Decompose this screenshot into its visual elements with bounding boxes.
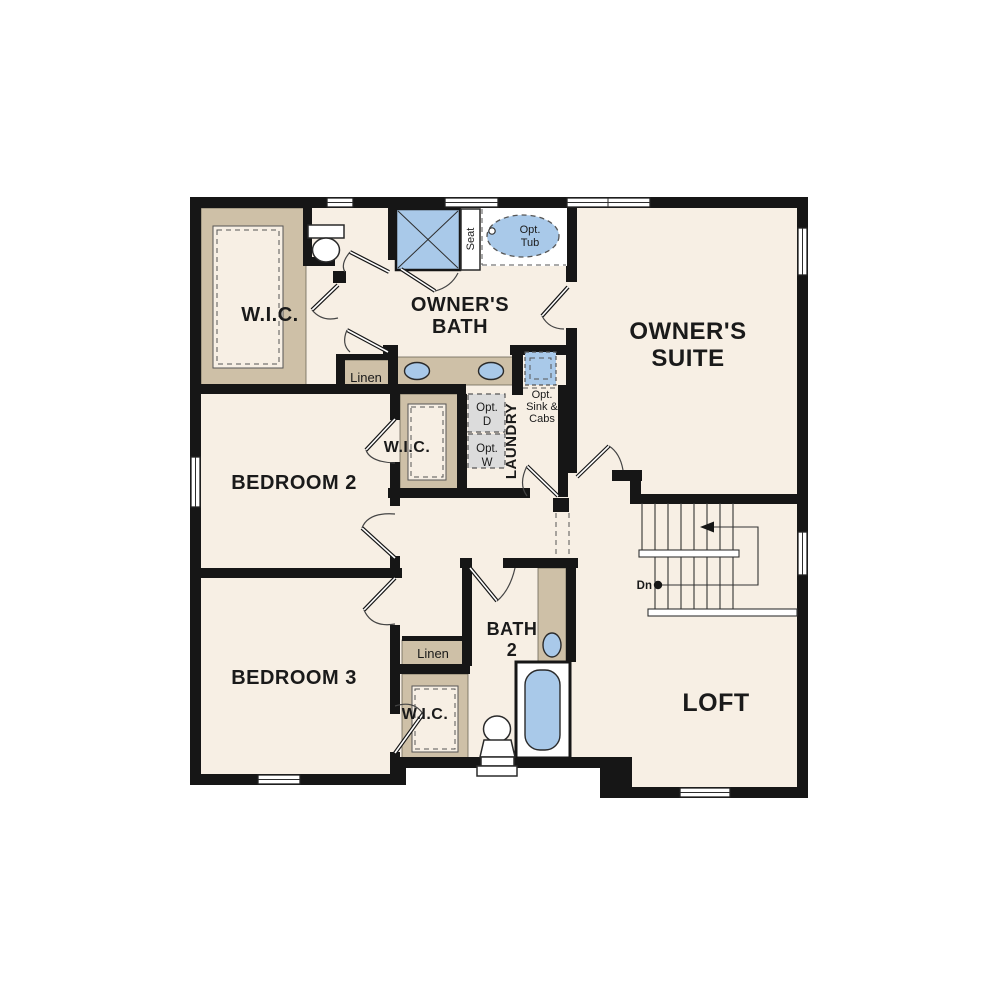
wall xyxy=(333,271,346,283)
window xyxy=(798,228,807,275)
wall xyxy=(460,558,472,568)
wall xyxy=(390,462,400,506)
window xyxy=(258,775,300,784)
label-linen2: Linen xyxy=(417,646,449,661)
room-label-owners-suite: SUITE xyxy=(651,345,724,372)
floor-plan-drawing: W.I.C. OWNER'S BATH OWNER'S SUITE BEDROO… xyxy=(0,0,1000,1000)
label-seat: Seat xyxy=(465,228,477,251)
wall xyxy=(336,354,345,394)
wall xyxy=(462,558,472,666)
wall xyxy=(612,470,642,481)
sink xyxy=(479,363,504,380)
label-linen1: Linen xyxy=(350,370,382,385)
room-label-wic2: W.I.C. xyxy=(384,439,431,456)
optional-sink-cabs xyxy=(523,352,558,388)
wall xyxy=(566,328,577,473)
wall xyxy=(402,636,466,641)
wall xyxy=(388,345,398,394)
wall xyxy=(190,197,808,208)
label-opt-dryer: D xyxy=(483,416,491,428)
window xyxy=(445,198,498,207)
wall xyxy=(630,494,808,504)
wall xyxy=(388,488,530,498)
label-opt-washer: W xyxy=(482,457,493,469)
wall xyxy=(553,498,569,512)
window-double xyxy=(567,198,650,207)
wall xyxy=(190,568,402,578)
label-opt-sink: Cabs xyxy=(529,413,555,425)
room-label-wic1: W.I.C. xyxy=(241,304,298,326)
bathtub xyxy=(516,662,570,758)
wall xyxy=(390,674,400,714)
wall xyxy=(390,625,400,665)
stair-bottom-edge xyxy=(648,609,797,616)
stair-direction-dot xyxy=(654,581,662,589)
room-label-bath2: BATH xyxy=(487,619,538,639)
floor-plan: W.I.C. OWNER'S BATH OWNER'S SUITE BEDROO… xyxy=(0,0,1000,1000)
room-label-bedroom3: BEDROOM 3 xyxy=(231,667,357,689)
wall xyxy=(566,558,576,662)
room-label-owners-suite: OWNER'S xyxy=(629,318,746,345)
label-opt-sink: Opt. xyxy=(532,389,553,401)
wall xyxy=(390,752,400,777)
room-label-laundry: LAUNDRY xyxy=(503,403,520,479)
window xyxy=(191,457,200,507)
room-label-wic3: W.I.C. xyxy=(402,706,449,723)
wall xyxy=(457,394,467,488)
wall xyxy=(566,202,577,282)
shower xyxy=(396,209,460,270)
room-label-loft: LOFT xyxy=(682,689,749,717)
room-label-bedroom2: BEDROOM 2 xyxy=(231,472,357,494)
label-opt-tub: Tub xyxy=(521,237,540,249)
tub-faucet-icon xyxy=(489,228,495,234)
room-label-bath2: 2 xyxy=(507,640,518,660)
label-opt-washer: Opt. xyxy=(476,443,498,455)
label-opt-sink: Sink & xyxy=(526,401,558,413)
stair-landing-edge xyxy=(639,550,739,557)
label-opt-tub: Opt. xyxy=(520,224,541,236)
sink xyxy=(405,363,430,380)
window xyxy=(798,532,807,575)
window xyxy=(327,198,353,207)
wall xyxy=(390,664,470,674)
label-opt-dryer: Opt. xyxy=(476,402,498,414)
window xyxy=(680,788,730,797)
room-label-owners-bath: OWNER'S xyxy=(411,294,509,316)
wic1-inner xyxy=(213,226,283,368)
wall xyxy=(390,394,400,420)
room-label-owners-bath: BATH xyxy=(432,316,488,338)
wall xyxy=(190,384,466,394)
label-stairs-down: Dn xyxy=(637,580,652,592)
sink xyxy=(543,633,561,657)
